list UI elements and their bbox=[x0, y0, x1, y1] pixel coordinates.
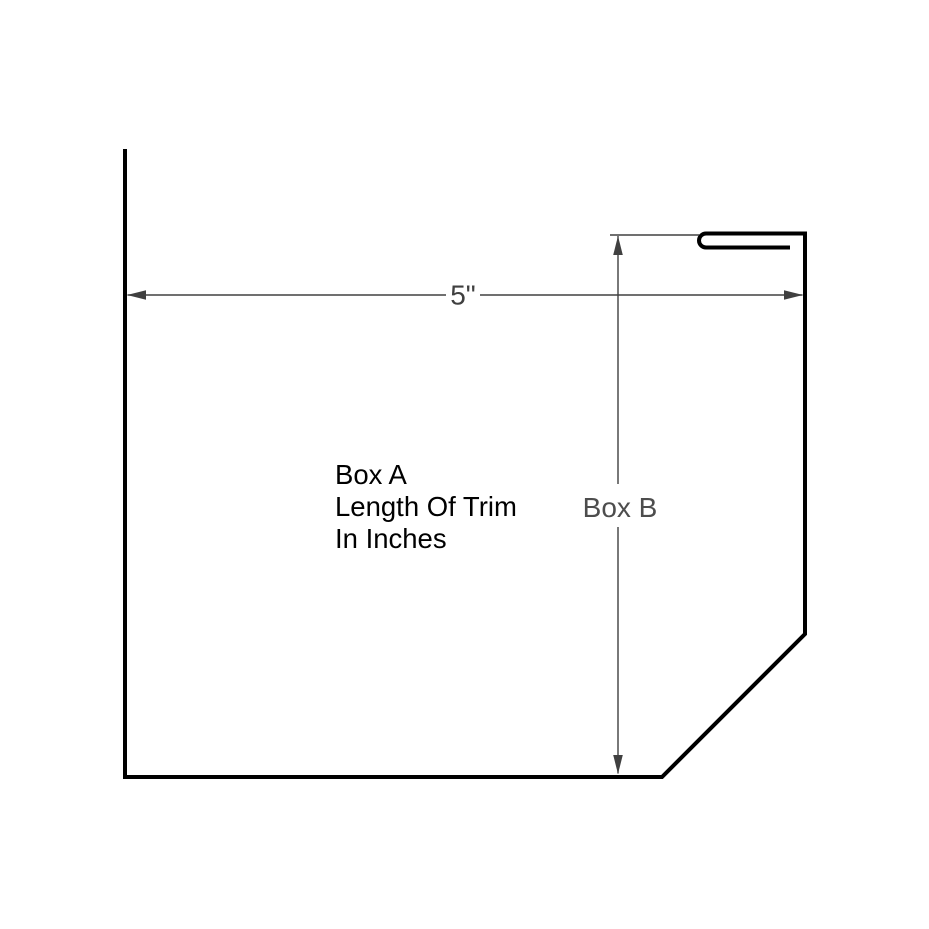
trim-profile-outline bbox=[125, 149, 805, 777]
trim-drawing-canvas: 5" Box B Box A Length Of Trim In Inches bbox=[0, 0, 929, 929]
note-line-3: In Inches bbox=[335, 523, 447, 554]
height-dim-label: Box B bbox=[583, 492, 658, 523]
note-line-1: Box A bbox=[335, 459, 408, 490]
height-dim-arrow-down-icon bbox=[613, 755, 623, 774]
width-dim-label: 5" bbox=[450, 280, 476, 311]
trim-profile-diagram: 5" Box B Box A Length Of Trim In Inches bbox=[0, 0, 929, 929]
height-dim-arrow-up-icon bbox=[613, 236, 623, 255]
width-dim-arrow-right-icon bbox=[784, 290, 803, 300]
note-line-2: Length Of Trim bbox=[335, 491, 517, 522]
width-dim-arrow-left-icon bbox=[127, 290, 146, 300]
